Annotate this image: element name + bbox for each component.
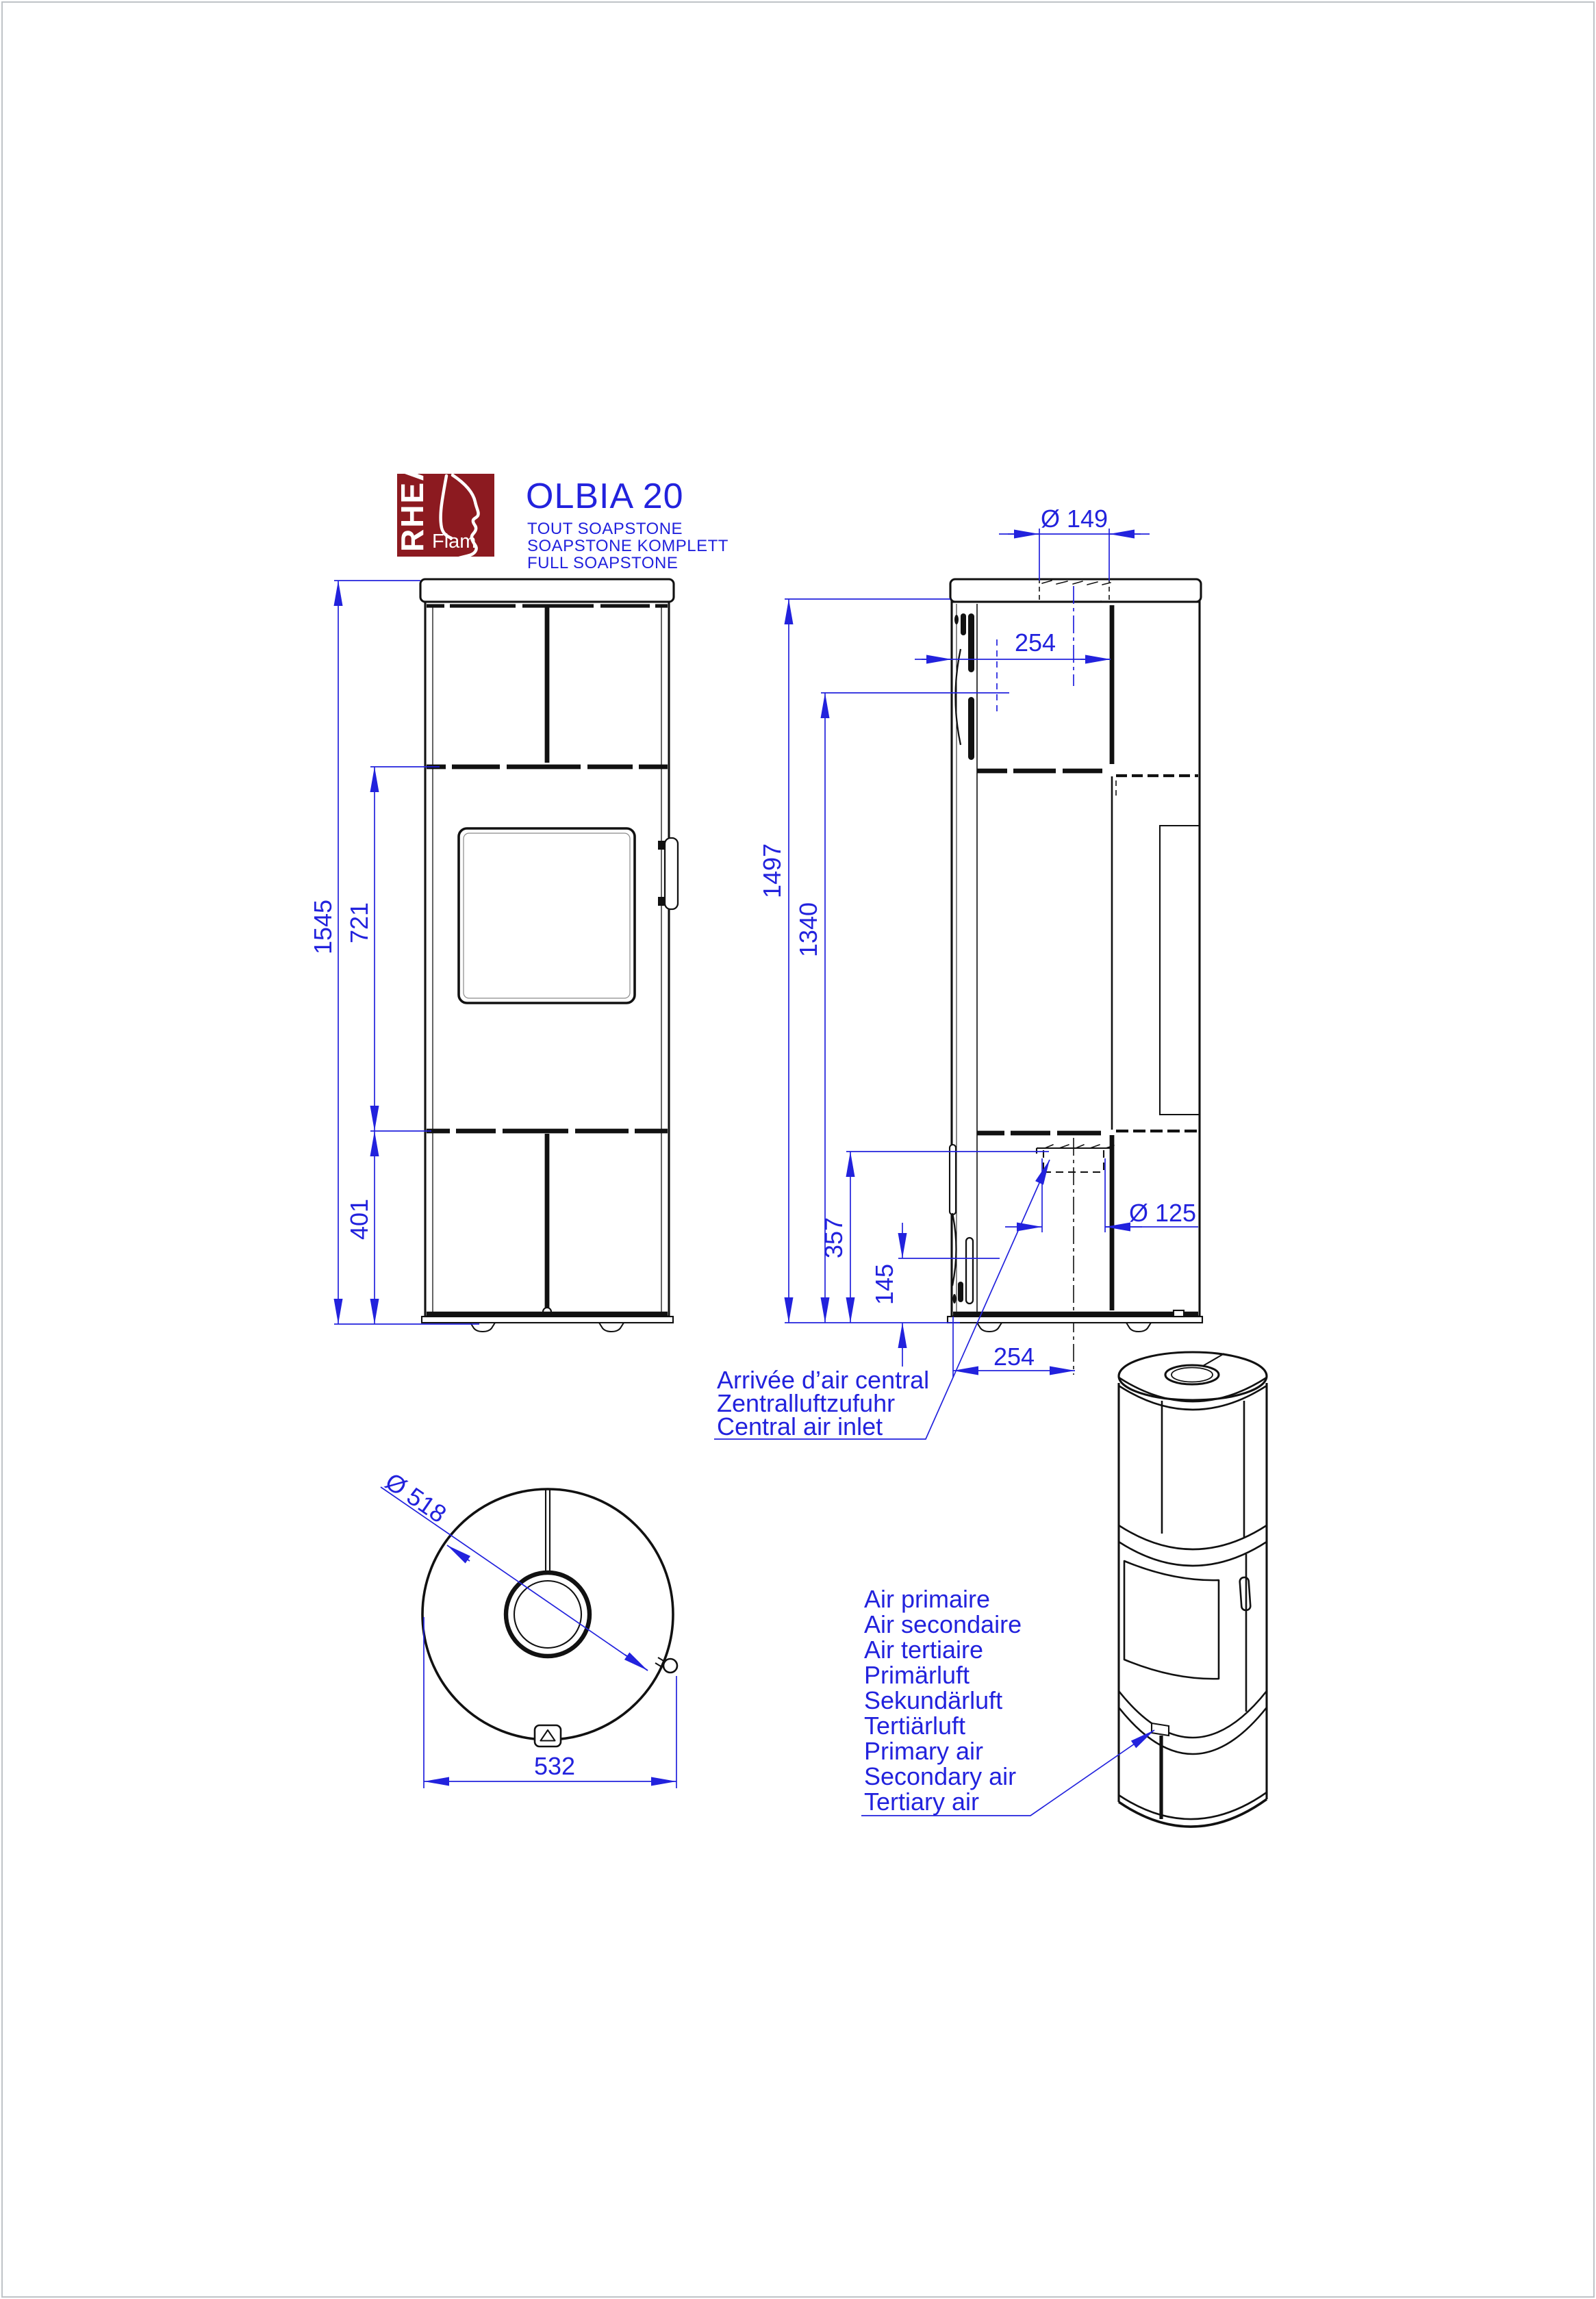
front-foot-right: [599, 1323, 624, 1332]
header: RHEA Flam OLBIA 20 TOUT SOAPSTONE SOAPST…: [394, 457, 729, 572]
air-label-2: Air tertiaire: [864, 1636, 983, 1664]
subtitle-fr: TOUT SOAPSTONE: [527, 520, 683, 538]
air-label-1: Air secondaire: [864, 1610, 1022, 1638]
central-air-label-en: Central air inlet: [717, 1412, 883, 1440]
persp-door-glass: [1124, 1561, 1219, 1679]
model-title: OLBIA 20: [526, 477, 684, 516]
top-latch-tab: [535, 1725, 561, 1747]
sheet-border: [2, 2, 1594, 2297]
dim-inlet-height: 145: [870, 1264, 898, 1305]
subtitle-de: SOAPSTONE KOMPLETT: [527, 537, 729, 555]
top-flue-outlet: [506, 1573, 590, 1656]
air-label-5: Tertiärluft: [864, 1712, 965, 1740]
persp-air-inlet-tab: [1152, 1723, 1169, 1736]
persp-bottom-edge: [1119, 1799, 1267, 1827]
persp-upper-band-2: [1119, 1542, 1267, 1566]
side-vent-slot-tall-1: [968, 613, 974, 672]
air-label-0: Air primaire: [864, 1585, 990, 1613]
dim-flue-offset: 254: [1015, 628, 1056, 657]
logo-brand-text: RHEA: [394, 457, 430, 552]
side-vent-slot-small-top: [961, 613, 966, 635]
dim-stone-diameter: Ø 518: [380, 1467, 451, 1528]
side-vent-slot-bottom: [966, 1238, 973, 1304]
front-door-handle: [665, 838, 678, 909]
dim-flue-diameter: Ø 149: [1041, 505, 1108, 533]
side-base-lip: [948, 1317, 1202, 1323]
air-label-7: Secondary air: [864, 1762, 1016, 1790]
front-door-glass: [459, 828, 635, 1003]
dim-mid-height: 721: [345, 902, 373, 943]
air-label-4: Sekundärluft: [864, 1686, 1002, 1714]
front-hinge-mark-bottom: [658, 897, 665, 906]
side-edge-slot: [950, 1145, 956, 1215]
technical-drawing: RHEA Flam OLBIA 20 TOUT SOAPSTONE SOAPST…: [0, 0, 1596, 2299]
dim-vent-height: 1340: [794, 902, 822, 957]
side-foot-front: [977, 1323, 1002, 1332]
side-vent-slot-tall-2: [968, 697, 974, 760]
dim-inlet-top-height: 357: [820, 1217, 848, 1258]
side-foot-back: [1126, 1323, 1151, 1332]
side-vent-dot-bottom: [953, 1294, 957, 1304]
front-view: [420, 579, 678, 1332]
top-view: [422, 1489, 677, 1747]
persp-door-handle: [1239, 1577, 1250, 1611]
side-top-plate: [950, 579, 1201, 602]
air-label-8: Tertiary air: [864, 1788, 979, 1816]
logo-sub-text: Flam: [432, 531, 476, 552]
rhea-flam-logo: RHEA Flam: [394, 457, 494, 565]
dim-overall-width: 532: [534, 1752, 575, 1780]
front-top-plate: [420, 579, 674, 602]
side-vent-slot-small-bottom: [958, 1282, 963, 1302]
side-vent-dot-top: [954, 615, 959, 624]
side-view: [948, 579, 1202, 1375]
air-label-6: Primary air: [864, 1737, 983, 1765]
dim-total-height: 1545: [309, 900, 337, 954]
front-hinge-mark-top: [658, 841, 665, 850]
dim-inlet-diameter: Ø 125: [1129, 1199, 1196, 1227]
dim-inlet-offset: 254: [993, 1343, 1035, 1371]
perspective-view: [1119, 1352, 1267, 1827]
front-base-lip: [422, 1317, 673, 1323]
dim-base-height: 401: [345, 1199, 373, 1240]
top-handle-knob: [663, 1659, 677, 1673]
subtitle-en: FULL SOAPSTONE: [527, 554, 678, 572]
side-back-bracket: [1174, 1310, 1184, 1317]
drawing-sheet: RHEA Flam OLBIA 20 TOUT SOAPSTONE SOAPST…: [0, 0, 1596, 2299]
air-label-3: Primärluft: [864, 1661, 970, 1689]
dim-body-height: 1497: [758, 843, 786, 898]
